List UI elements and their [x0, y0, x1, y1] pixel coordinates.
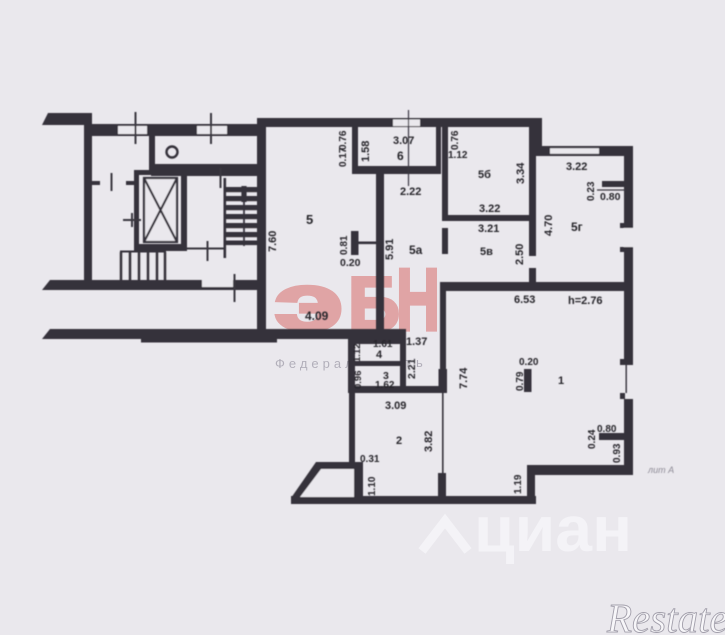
- svg-text:1.12: 1.12: [352, 344, 363, 363]
- svg-text:7.60: 7.60: [267, 231, 279, 252]
- svg-text:3.34: 3.34: [515, 162, 527, 184]
- svg-text:Федерал: Федерал: [275, 356, 357, 371]
- svg-text:7.74: 7.74: [458, 367, 470, 389]
- svg-text:0.17: 0.17: [338, 147, 349, 167]
- svg-text:1.10: 1.10: [367, 476, 378, 496]
- svg-text:3.22: 3.22: [479, 203, 500, 215]
- svg-text:5а: 5а: [409, 243, 423, 257]
- svg-text:4.70: 4.70: [543, 215, 555, 236]
- svg-text:5г: 5г: [571, 220, 583, 234]
- svg-text:h=2.76: h=2.76: [568, 295, 603, 307]
- svg-text:6: 6: [397, 149, 404, 163]
- svg-text:2.22: 2.22: [400, 186, 421, 198]
- svg-text:1.58: 1.58: [360, 141, 372, 162]
- svg-text:0.31: 0.31: [360, 454, 380, 465]
- svg-text:0.79: 0.79: [515, 371, 526, 391]
- svg-text:5: 5: [306, 212, 313, 227]
- svg-text:0.20: 0.20: [519, 357, 539, 368]
- svg-text:0.81: 0.81: [339, 235, 350, 255]
- svg-text:3.09: 3.09: [385, 400, 406, 412]
- svg-text:5.91: 5.91: [384, 239, 396, 260]
- svg-text:0.76: 0.76: [338, 130, 349, 150]
- svg-text:3.07: 3.07: [393, 135, 414, 147]
- svg-text:1.62: 1.62: [375, 380, 395, 391]
- svg-text:0.80: 0.80: [597, 424, 617, 435]
- svg-text:0.80: 0.80: [600, 191, 621, 203]
- svg-text:2: 2: [396, 435, 402, 447]
- svg-text:3.82: 3.82: [423, 431, 435, 452]
- svg-text:0.96: 0.96: [353, 371, 364, 390]
- svg-text:4.09: 4.09: [305, 309, 329, 323]
- svg-text:2.50: 2.50: [514, 244, 526, 265]
- svg-text:лит А: лит А: [647, 465, 674, 475]
- svg-text:0.23: 0.23: [586, 181, 597, 201]
- svg-text:6.53: 6.53: [514, 294, 535, 306]
- svg-text:Restate: Restate: [606, 595, 725, 635]
- svg-text:1: 1: [558, 375, 564, 387]
- svg-text:0.20: 0.20: [340, 257, 361, 269]
- svg-text:0.76: 0.76: [450, 130, 461, 150]
- svg-text:1.12: 1.12: [448, 150, 468, 161]
- svg-text:1.37: 1.37: [406, 336, 427, 348]
- svg-text:5в: 5в: [480, 246, 493, 258]
- svg-text:3.22: 3.22: [566, 161, 587, 173]
- svg-text:0.93: 0.93: [612, 443, 623, 463]
- svg-text:2.21: 2.21: [406, 358, 418, 379]
- svg-text:1.19: 1.19: [513, 474, 524, 494]
- svg-text:4: 4: [376, 349, 383, 361]
- svg-text:5б: 5б: [478, 169, 491, 181]
- svg-text:3.21: 3.21: [478, 223, 499, 235]
